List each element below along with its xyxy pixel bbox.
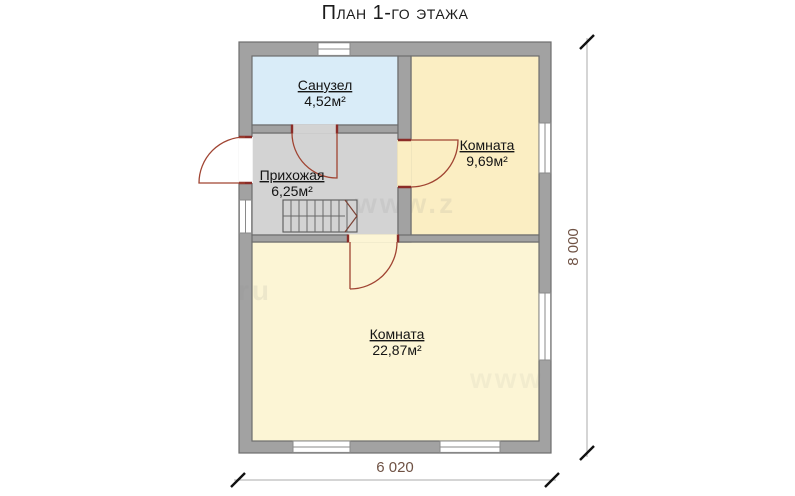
room-small-label: Комната (460, 137, 515, 153)
room-hallway-label: Прихожая (260, 167, 325, 183)
page-title: План 1-го этажа (322, 2, 469, 24)
dimension-horizontal: 6 020 (231, 459, 559, 487)
entry-door-swing-arc (199, 137, 245, 183)
dimension-vertical-value: 8 000 (565, 228, 582, 266)
watermark-text: www (469, 363, 544, 394)
window-right-lower (539, 293, 551, 360)
floor-plan-page: План 1-го этажа www.z ru www (0, 0, 795, 496)
window-bottom-right (440, 441, 500, 452)
watermark-text: ru (238, 275, 272, 306)
room-large-label: Комната (370, 326, 425, 342)
room-bathroom-area: 4,52м² (304, 93, 346, 109)
room-small-area: 9,69м² (466, 153, 508, 169)
window-left (240, 200, 252, 233)
large-room-door-opening (348, 234, 398, 243)
room-large-area: 22,87м² (372, 342, 422, 358)
dimension-vertical: 8 000 (565, 35, 594, 460)
floor-plan-canvas: План 1-го этажа www.z ru www (0, 0, 795, 496)
bathroom-door-opening (292, 124, 337, 134)
entry-door-opening (238, 137, 253, 183)
room-hallway-area: 6,25м² (271, 183, 313, 199)
window-top (318, 43, 350, 56)
small-room-door-opening (397, 140, 412, 187)
window-right-upper (539, 123, 551, 173)
window-bottom-left (293, 441, 350, 452)
room-bathroom-label: Санузел (298, 77, 353, 93)
dimension-horizontal-value: 6 020 (376, 459, 414, 476)
